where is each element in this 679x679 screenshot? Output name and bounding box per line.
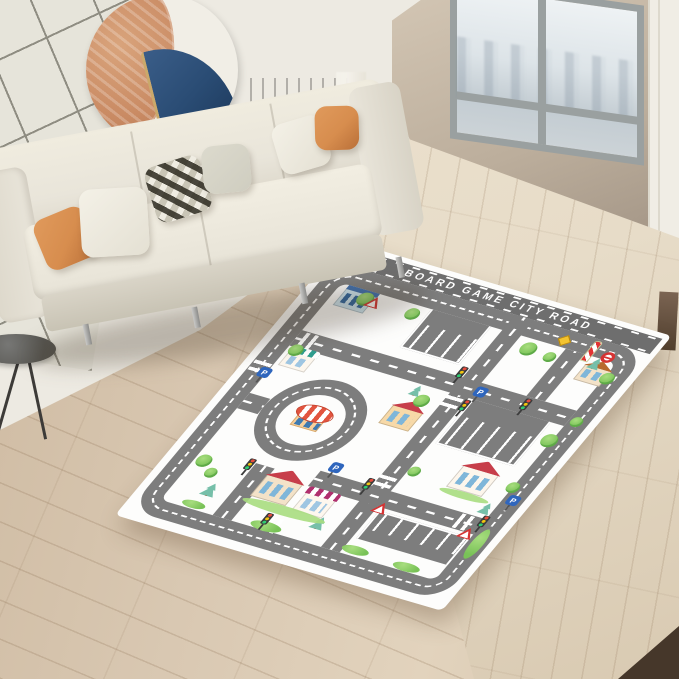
sofa-leg <box>191 306 201 328</box>
crosswalk-icon <box>451 513 476 531</box>
pillow-gray <box>200 143 252 195</box>
tree-icon <box>201 467 220 479</box>
tree-icon <box>537 432 562 449</box>
bush-icon <box>339 543 372 558</box>
tree-icon <box>567 416 586 428</box>
tree-icon <box>192 453 216 469</box>
traffic-light-icon <box>518 398 533 411</box>
tree-icon <box>503 481 523 494</box>
parking-sign-icon: P <box>327 461 346 473</box>
crosswalk-icon <box>372 473 398 489</box>
tree-icon <box>516 341 541 358</box>
caution-sign-icon <box>558 335 571 346</box>
sofa-leg <box>82 324 92 346</box>
traffic-light-icon <box>242 458 257 471</box>
tree-icon <box>540 351 559 363</box>
sofa-leg <box>299 282 309 304</box>
pillow-white <box>78 186 150 258</box>
warning-sign-icon <box>370 501 392 515</box>
window-mullion-vertical <box>538 0 546 145</box>
pine-tree-icon <box>195 481 223 501</box>
house-icon <box>378 405 423 432</box>
pillow-orange-right <box>314 105 359 150</box>
living-room-scene: BOARD GAME CITY ROAD PPPP <box>0 0 679 679</box>
traffic-light-icon <box>476 515 491 528</box>
bush-icon <box>180 498 208 511</box>
tree-icon <box>405 465 424 477</box>
balcony-window <box>450 0 644 166</box>
bush-icon <box>390 560 423 575</box>
sofa-leg <box>395 256 405 278</box>
traffic-light-icon <box>454 366 469 379</box>
parking-sign-icon: P <box>471 386 490 398</box>
parking-sign-icon: P <box>504 494 523 506</box>
